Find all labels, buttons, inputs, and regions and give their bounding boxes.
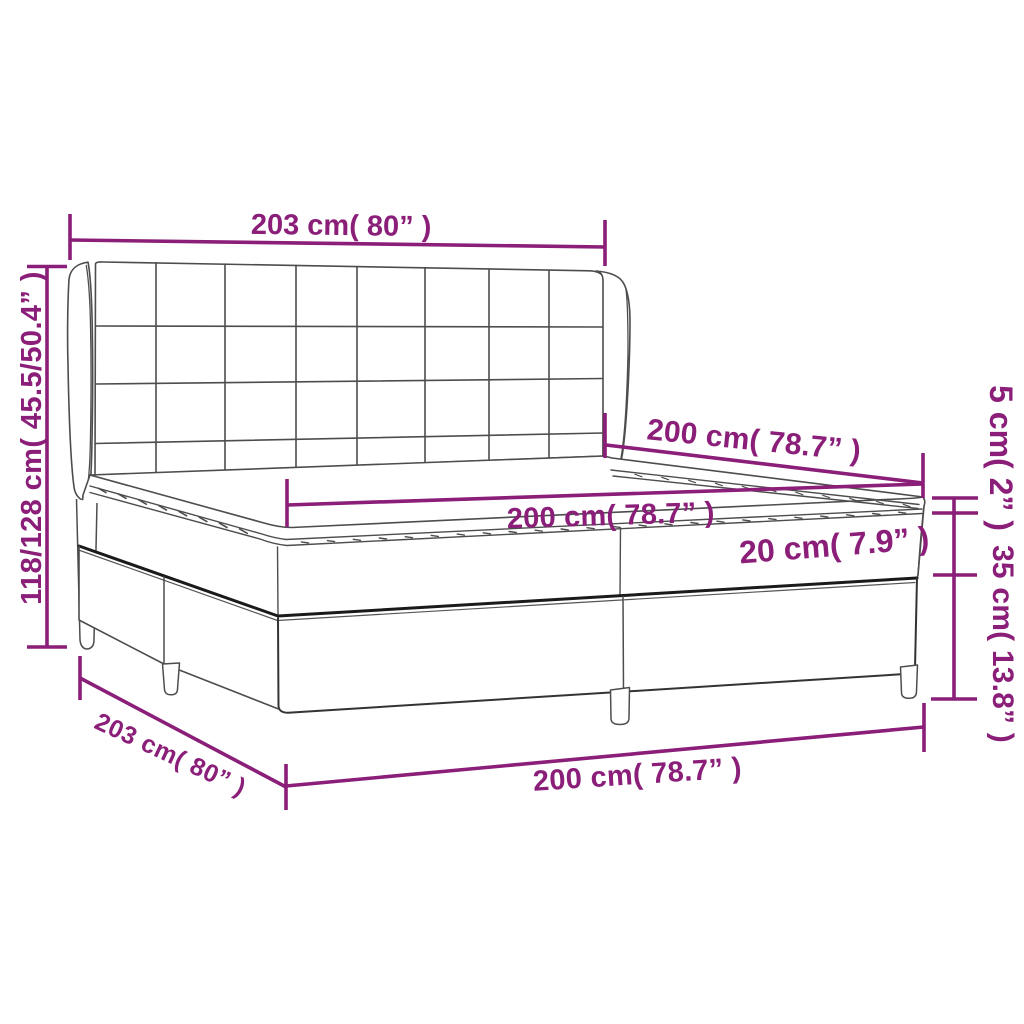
svg-text:5 cm( 2” ): 5 cm( 2” ) — [983, 385, 1019, 531]
svg-text:118/128 cm( 45.5/50.4” ): 118/128 cm( 45.5/50.4” ) — [16, 271, 48, 605]
svg-text:35 cm( 13.8” ): 35 cm( 13.8” ) — [986, 545, 1019, 743]
svg-text:203 cm( 80” ): 203 cm( 80” ) — [251, 209, 432, 243]
svg-text:200 cm( 78.7” ): 200 cm( 78.7” ) — [506, 497, 715, 536]
